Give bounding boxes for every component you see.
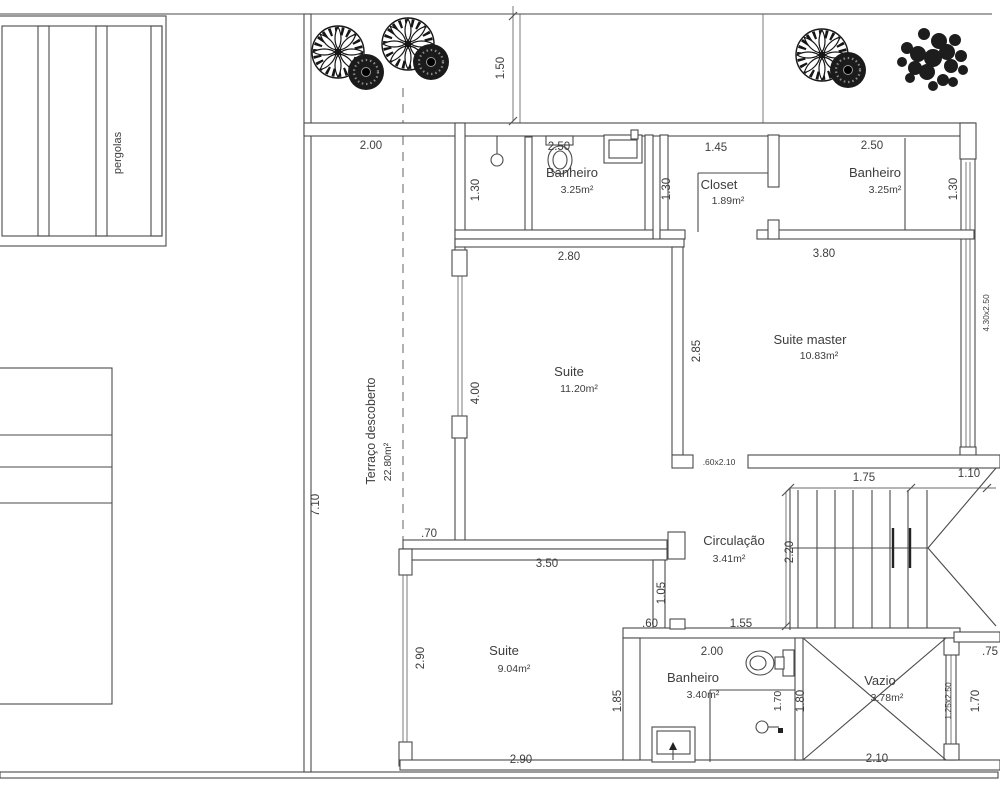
dim-banheiro-master-width: 2.50 bbox=[861, 140, 883, 152]
floor-plan: pergolas 1.50 2.00 Terraço descoberto 22… bbox=[0, 0, 1000, 800]
dim-stair-run: 1.75 bbox=[853, 472, 875, 484]
dim-suite1-window: 4.00 bbox=[470, 382, 482, 404]
dim-suite-master-window: 4.30x2.50 bbox=[981, 294, 991, 332]
dim-suite-master-door: .60x2.10 bbox=[703, 457, 736, 467]
pergolas-label: pergolas bbox=[112, 131, 124, 174]
dim-suite2-top: 3.50 bbox=[536, 558, 558, 570]
dim-terrace-wall: .70 bbox=[421, 528, 437, 540]
dim-terrace-length: 7.10 bbox=[310, 494, 322, 516]
dim-banheiro-master-depth: 1.30 bbox=[948, 178, 960, 200]
dim-vazio-width: 2.10 bbox=[866, 753, 888, 765]
dim-terrace-door: 2.00 bbox=[360, 140, 382, 152]
room-area-terraco: 22.80m² bbox=[382, 442, 394, 481]
room-area-banheiro1: 3.25m² bbox=[561, 184, 594, 196]
room-label-terraco: Terraço descoberto bbox=[364, 377, 378, 484]
dim-banheiro2-shower: 1.70 bbox=[772, 691, 784, 712]
dim-banheiro2-width: 2.00 bbox=[701, 646, 723, 658]
room-area-suite1: 11.20m² bbox=[560, 383, 598, 395]
sink-icon bbox=[604, 130, 642, 163]
shower-head-icon-2 bbox=[756, 721, 783, 733]
dim-suite1-width: 2.80 bbox=[558, 251, 580, 263]
room-label-closet: Closet bbox=[701, 177, 738, 192]
staircase bbox=[782, 468, 996, 630]
dim-right-room-top: .75 bbox=[982, 646, 998, 658]
dim-suite2-side: 2.90 bbox=[415, 647, 427, 669]
room-area-suite2: 9.04m² bbox=[498, 663, 531, 675]
dim-right-room-side: 1.70 bbox=[970, 690, 982, 712]
room-label-banheiro-master: Banheiro bbox=[849, 165, 901, 180]
dim-banheiro1-depth: 1.30 bbox=[470, 179, 482, 201]
room-area-vazio: 3.78m² bbox=[871, 692, 904, 704]
dim-suite-master-width: 3.80 bbox=[813, 248, 835, 260]
room-area-suite-master: 10.83m² bbox=[800, 350, 839, 362]
room-label-suite2: Suite bbox=[489, 643, 519, 658]
dim-vazio-window: 1.25x2.50 bbox=[943, 682, 953, 720]
dim-banheiro1-width: 2.50 bbox=[548, 141, 570, 153]
floor-plan-svg: pergolas 1.50 2.00 Terraço descoberto 22… bbox=[0, 0, 1000, 800]
room-area-banheiro2: 3.40m² bbox=[687, 689, 720, 701]
dim-banheiro2-offset: .60 bbox=[642, 618, 658, 630]
dim-stair-landing: 1.10 bbox=[958, 468, 980, 480]
vegetation bbox=[312, 18, 968, 91]
room-label-suite1: Suite bbox=[554, 364, 584, 379]
setback-dimension bbox=[509, 6, 517, 125]
room-area-closet: 1.89m² bbox=[712, 195, 745, 207]
room-label-circulacao: Circulação bbox=[703, 533, 764, 548]
dim-suite-master-depth: 2.85 bbox=[691, 340, 703, 362]
room-label-banheiro2: Banheiro bbox=[667, 670, 719, 685]
dim-closet-depth: 1.30 bbox=[661, 178, 673, 200]
dim-stair-width: 2.20 bbox=[784, 541, 796, 563]
dim-suite2-door: 1.05 bbox=[656, 582, 668, 604]
pergola-structure bbox=[0, 16, 166, 246]
sink-cabinet-icon bbox=[652, 727, 695, 762]
dim-vazio-height: 1.80 bbox=[795, 690, 807, 712]
lower-left-structure bbox=[0, 368, 112, 704]
room-label-suite-master: Suite master bbox=[774, 332, 848, 347]
dim-front-setback: 1.50 bbox=[495, 57, 507, 79]
room-area-banheiro-master: 3.25m² bbox=[869, 184, 902, 196]
toilet-icon-2 bbox=[746, 650, 794, 676]
dim-suite2-right: 1.85 bbox=[612, 690, 624, 712]
dim-closet-width: 1.45 bbox=[705, 142, 727, 154]
room-area-circulacao: 3.41m² bbox=[713, 553, 746, 565]
room-label-banheiro1: Banheiro bbox=[546, 165, 598, 180]
shower-head-icon bbox=[491, 136, 503, 166]
dim-banheiro2-top: 1.55 bbox=[730, 618, 752, 630]
dim-suite2-bottom: 2.90 bbox=[510, 754, 532, 766]
room-label-vazio: Vazio bbox=[864, 673, 896, 688]
